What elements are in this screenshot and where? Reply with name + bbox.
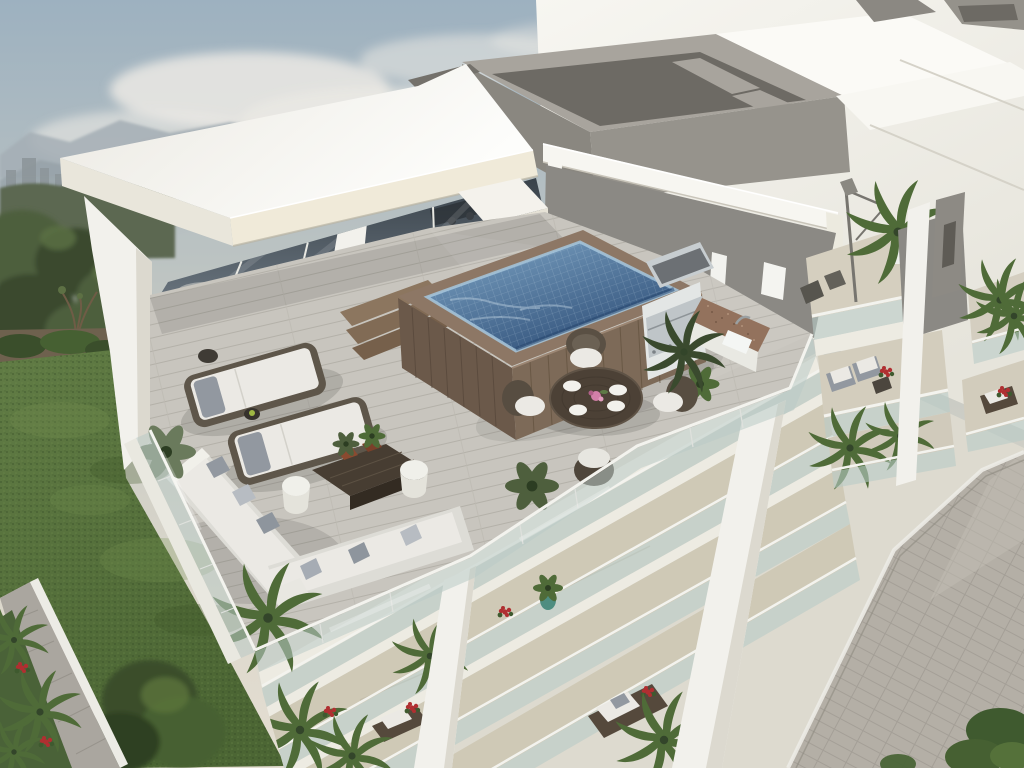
- dining-table: [550, 368, 642, 428]
- ceramic-stool: [400, 460, 428, 498]
- drinks-tray: [244, 408, 260, 420]
- render-stage: [0, 0, 1024, 768]
- dining-chair-north: [566, 328, 606, 368]
- penthouse-rendering: [0, 0, 1024, 768]
- window: [761, 262, 786, 300]
- plate: [563, 381, 581, 392]
- side-table: [198, 349, 218, 363]
- plate: [609, 385, 627, 396]
- ceramic-stool: [282, 476, 310, 514]
- plate: [569, 405, 587, 416]
- plate: [607, 401, 625, 412]
- west-wall-shade: [136, 248, 152, 452]
